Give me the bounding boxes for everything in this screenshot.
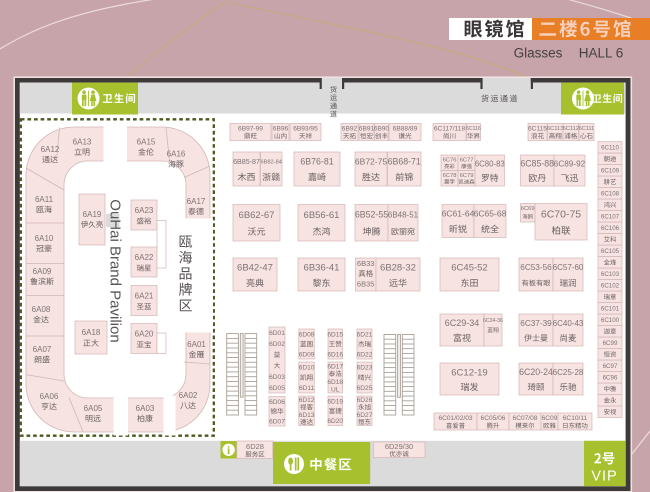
svg-text:6B35: 6B35 — [357, 280, 375, 289]
svg-text:6A02: 6A02 — [179, 391, 198, 400]
svg-text:6A18: 6A18 — [82, 328, 101, 337]
svg-text:6C110: 6C110 — [601, 145, 619, 152]
svg-text:6C100: 6C100 — [601, 317, 620, 324]
svg-text:6C108: 6C108 — [601, 191, 620, 198]
svg-text:6B56-61: 6B56-61 — [304, 210, 340, 221]
svg-text:6A08: 6A08 — [32, 305, 51, 314]
svg-text:6D17: 6D17 — [327, 363, 343, 370]
svg-text:6C109: 6C109 — [601, 168, 620, 175]
svg-text:6C37-39: 6C37-39 — [520, 319, 552, 328]
svg-text:6D11: 6D11 — [299, 385, 315, 392]
svg-text:6B52-55: 6B52-55 — [355, 210, 388, 220]
svg-text:6D10: 6D10 — [299, 365, 315, 372]
svg-text:6C96: 6C96 — [603, 375, 618, 382]
svg-text:6B28-32: 6B28-32 — [380, 262, 416, 273]
svg-text:OuHai Brand Pavilion: OuHai Brand Pavilion — [107, 199, 124, 342]
svg-text:6C65-68: 6C65-68 — [474, 209, 507, 219]
svg-text:6B92: 6B92 — [342, 125, 358, 132]
svg-text:6D13: 6D13 — [299, 412, 315, 419]
svg-text:6C57-60: 6C57-60 — [553, 263, 584, 272]
svg-text:6A01: 6A01 — [187, 340, 206, 349]
svg-text:6D20: 6D20 — [327, 418, 343, 425]
svg-text:6C97: 6C97 — [603, 363, 618, 370]
svg-text:6C116: 6C116 — [466, 126, 481, 132]
svg-text:6C80-83: 6C80-83 — [475, 159, 505, 168]
svg-text:6C34-36: 6C34-36 — [483, 318, 503, 324]
svg-text:6C76: 6C76 — [443, 157, 457, 163]
svg-text:6C69: 6C69 — [521, 206, 535, 212]
svg-text:6C117/118: 6C117/118 — [434, 125, 466, 132]
svg-text:6A21: 6A21 — [135, 291, 154, 300]
svg-text:6C107: 6C107 — [601, 214, 620, 221]
svg-text:6C45-52: 6C45-52 — [451, 262, 487, 273]
svg-text:6C105: 6C105 — [601, 248, 620, 255]
svg-text:6C05/06: 6C05/06 — [481, 415, 506, 422]
svg-text:6B33: 6B33 — [357, 259, 375, 268]
svg-text:6D02: 6D02 — [269, 341, 285, 348]
svg-text:6B42-47: 6B42-47 — [237, 262, 273, 273]
svg-text:6A07: 6A07 — [33, 345, 52, 354]
svg-text:6C78: 6C78 — [443, 173, 457, 179]
svg-text:6A11: 6A11 — [35, 195, 54, 204]
svg-text:6C102: 6C102 — [601, 283, 620, 290]
svg-text:6C61-64: 6C61-64 — [442, 209, 475, 219]
svg-text:6D18: 6D18 — [327, 379, 343, 386]
svg-text:6A09: 6A09 — [33, 267, 52, 276]
svg-text:6C79: 6C79 — [460, 173, 474, 179]
svg-text:6C99: 6C99 — [603, 340, 618, 347]
svg-text:6B93/95: 6B93/95 — [293, 125, 318, 132]
svg-text:6B68-71: 6B68-71 — [388, 157, 421, 167]
svg-text:6A12: 6A12 — [41, 145, 60, 154]
svg-text:6B62-67: 6B62-67 — [239, 210, 275, 221]
svg-text:6D19: 6D19 — [327, 398, 343, 405]
svg-text:6C20-24: 6C20-24 — [519, 367, 553, 377]
svg-text:6C25-28: 6C25-28 — [553, 368, 584, 377]
svg-text:6D27: 6D27 — [357, 412, 373, 419]
svg-text:6B82-84: 6B82-84 — [260, 160, 282, 166]
svg-text:6D12: 6D12 — [299, 397, 315, 404]
svg-text:6A23: 6A23 — [135, 206, 154, 215]
svg-text:6B36-41: 6B36-41 — [304, 262, 340, 273]
svg-text:6D05: 6D05 — [269, 385, 285, 392]
svg-text:UL: UL — [331, 387, 340, 394]
svg-text:6C77: 6C77 — [460, 157, 474, 163]
svg-text:6A13: 6A13 — [73, 137, 92, 146]
svg-text:6B96: 6B96 — [273, 125, 289, 132]
svg-text:6A03: 6A03 — [136, 404, 155, 413]
svg-text:6D07: 6D07 — [269, 418, 285, 425]
svg-text:6D25: 6D25 — [357, 385, 373, 392]
svg-text:6A17: 6A17 — [187, 197, 206, 206]
svg-text:6C40-43: 6C40-43 — [553, 319, 584, 328]
svg-text:6D08: 6D08 — [299, 331, 315, 338]
svg-text:6D28: 6D28 — [246, 442, 264, 451]
svg-text:6A22: 6A22 — [135, 253, 154, 262]
svg-text:6C09: 6C09 — [542, 415, 558, 422]
svg-text:6C89-92: 6C89-92 — [554, 159, 586, 168]
svg-text:Glasses: Glasses — [514, 45, 563, 60]
svg-text:6C115: 6C115 — [528, 125, 547, 132]
svg-text:6D23: 6D23 — [357, 365, 373, 372]
svg-text:6C106: 6C106 — [601, 225, 620, 232]
svg-text:6D09: 6D09 — [299, 351, 315, 358]
svg-text:6D15: 6D15 — [327, 331, 343, 338]
svg-text:6D06: 6D06 — [269, 399, 285, 406]
svg-text:6A10: 6A10 — [35, 234, 54, 243]
svg-text:6C111: 6C111 — [579, 126, 594, 132]
svg-text:6A20: 6A20 — [135, 329, 154, 338]
svg-text:6D22: 6D22 — [357, 351, 373, 358]
svg-text:6C12-19: 6C12-19 — [451, 367, 487, 378]
svg-text:6C10/11: 6C10/11 — [563, 415, 588, 422]
svg-text:6C112: 6C112 — [563, 126, 579, 132]
svg-text:6C85-88: 6C85-88 — [520, 159, 554, 169]
svg-text:6C113: 6C113 — [547, 126, 563, 132]
svg-text:6D21: 6D21 — [357, 331, 373, 338]
svg-text:6B88/89: 6B88/89 — [393, 125, 418, 132]
svg-text:6A05: 6A05 — [84, 404, 103, 413]
svg-text:6D01: 6D01 — [269, 330, 285, 337]
svg-text:6D03: 6D03 — [269, 374, 285, 381]
svg-text:6D26: 6D26 — [357, 397, 373, 404]
svg-text:6D16: 6D16 — [327, 351, 343, 358]
svg-text:6B72-75: 6B72-75 — [355, 157, 387, 167]
svg-text:6B90: 6B90 — [374, 125, 389, 132]
svg-text:6C101: 6C101 — [601, 306, 620, 313]
svg-text:6B85-87: 6B85-87 — [233, 158, 260, 166]
svg-text:6A19: 6A19 — [83, 210, 102, 219]
svg-text:6B97-99: 6B97-99 — [238, 125, 263, 132]
svg-text:6C103: 6C103 — [601, 271, 620, 278]
svg-text:6A16: 6A16 — [167, 149, 186, 158]
svg-text:6B48-51: 6B48-51 — [388, 210, 419, 219]
svg-text:6C07/08: 6C07/08 — [513, 415, 538, 422]
svg-text:6C01/02/03: 6C01/02/03 — [438, 415, 472, 422]
svg-text:6B91: 6B91 — [359, 125, 375, 132]
svg-text:6C29-34: 6C29-34 — [445, 318, 480, 328]
svg-text:6A06: 6A06 — [40, 392, 59, 401]
svg-text:6D29/30: 6D29/30 — [385, 442, 413, 451]
svg-text:6C70-75: 6C70-75 — [541, 208, 581, 220]
svg-text:HALL 6: HALL 6 — [579, 45, 624, 60]
svg-text:6A15: 6A15 — [137, 137, 156, 146]
svg-text:6B76-81: 6B76-81 — [300, 157, 333, 167]
svg-text:6C53-56: 6C53-56 — [520, 263, 552, 272]
svg-text:VIP: VIP — [591, 469, 617, 485]
